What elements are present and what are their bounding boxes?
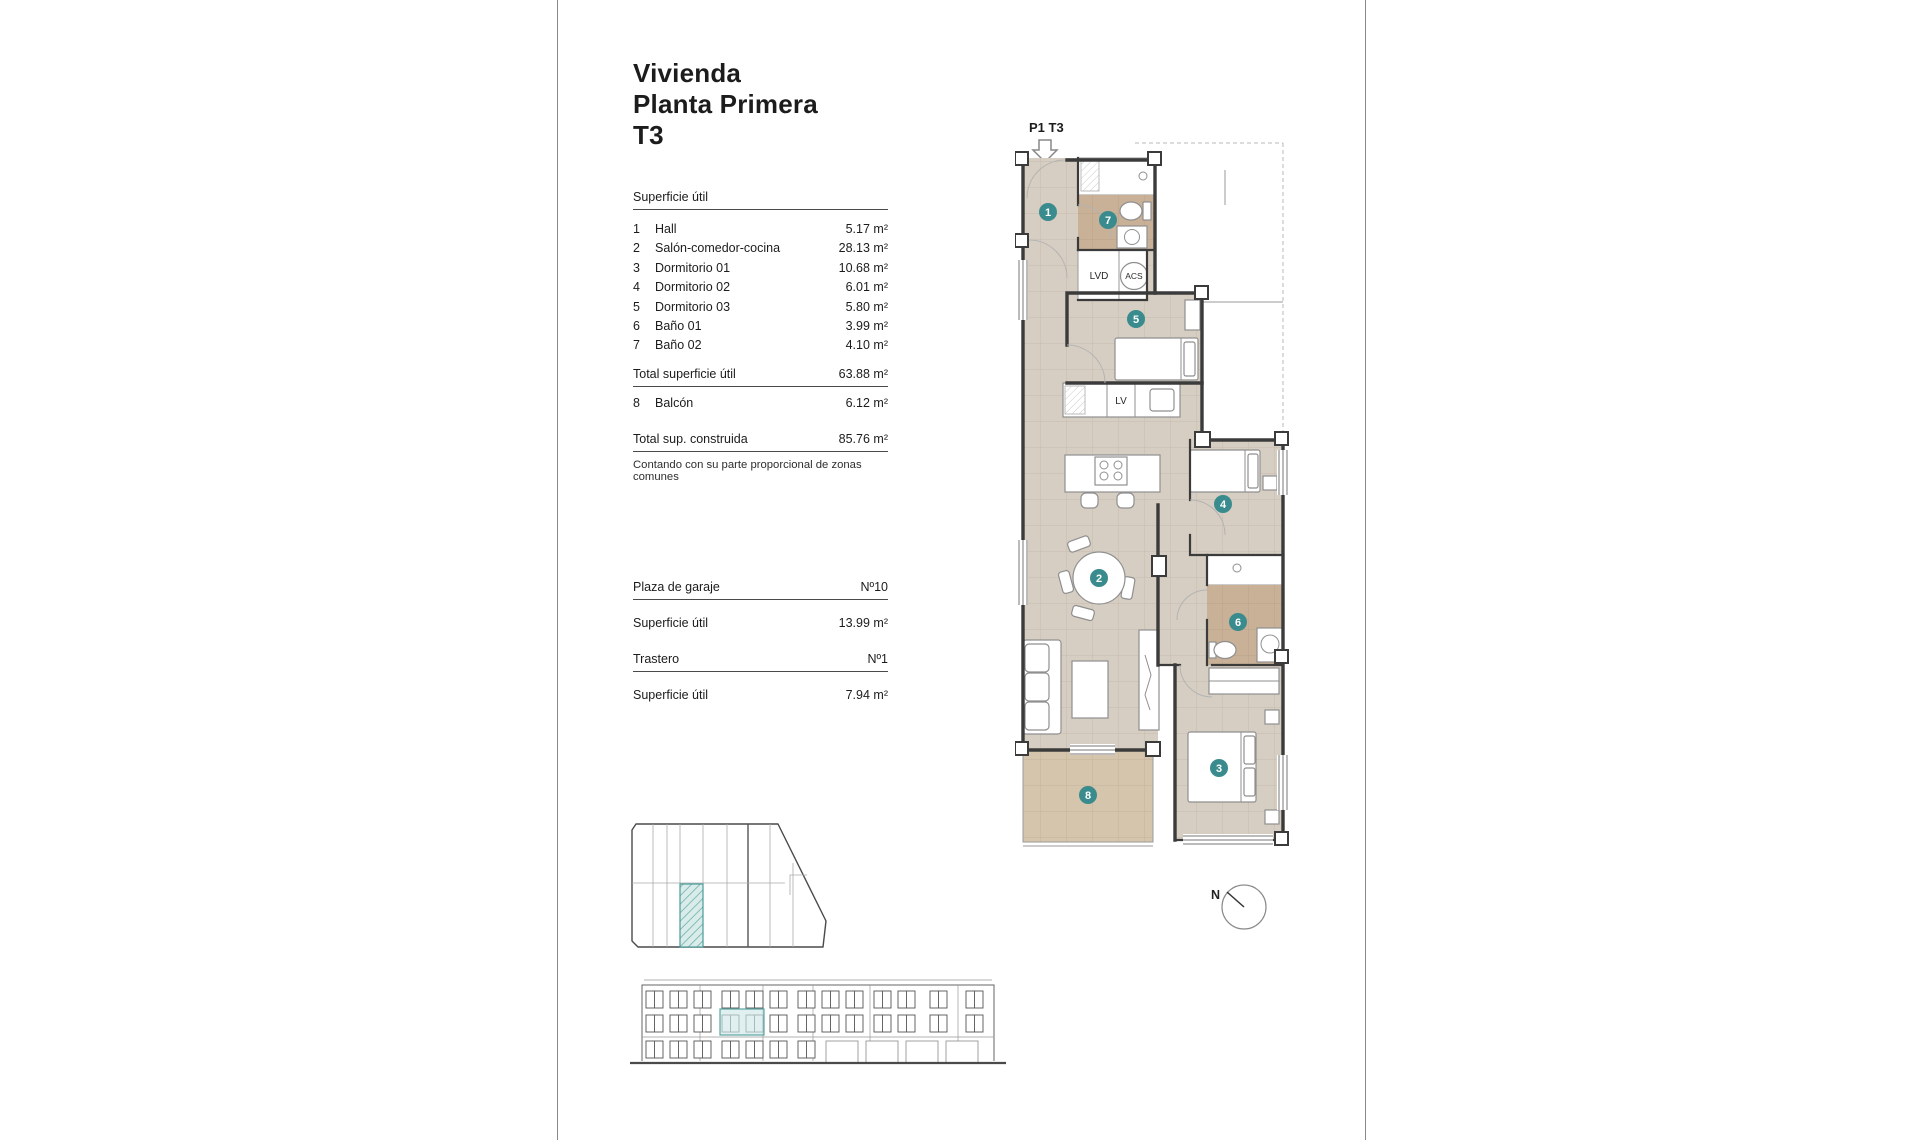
storage-number: Nº1 [867, 652, 888, 666]
sofa [1023, 640, 1061, 734]
badge-number: 5 [1133, 314, 1139, 326]
floor-plan: P1 T3 [1015, 110, 1305, 970]
highlighted-unit-plan [680, 884, 703, 947]
stool [1081, 493, 1098, 508]
total-built-row: Total sup. construida 85.76 m² [633, 432, 888, 452]
badge-number: 2 [1096, 573, 1102, 585]
pillow [1244, 768, 1255, 796]
row-name: Baño 02 [655, 338, 846, 352]
title-line-2: Planta Primera [633, 89, 818, 120]
unit-label: P1 T3 [1029, 120, 1064, 135]
row-num: 5 [633, 300, 655, 314]
row-value: 4.10 m² [846, 338, 888, 352]
title-line-3: T3 [633, 120, 818, 151]
storage-area-value: 7.94 m² [846, 688, 888, 702]
row-num: 1 [633, 222, 655, 236]
storage-area-row: Superficie útil 7.94 m² [633, 688, 888, 702]
garage-area-value: 13.99 m² [839, 616, 888, 630]
pillow [1184, 342, 1195, 376]
room-badge-2: 2 [1090, 569, 1108, 587]
row-num: 8 [633, 396, 655, 410]
room-badge-1: 1 [1039, 203, 1057, 221]
hob [1095, 457, 1127, 485]
table-row: 1 Hall 5.17 m² [633, 222, 888, 241]
row-value: 5.17 m² [846, 222, 888, 236]
table-row: 5 Dormitorio 03 5.80 m² [633, 300, 888, 319]
row-value: 28.13 m² [839, 241, 888, 255]
built-label: Total sup. construida [633, 432, 748, 446]
row-num: 7 [633, 338, 655, 352]
nightstand [1263, 476, 1277, 490]
row-value: 3.99 m² [846, 319, 888, 333]
row-num: 6 [633, 319, 655, 333]
storage-header-row: Trastero Nº1 [633, 652, 888, 672]
badge-number: 3 [1216, 763, 1222, 775]
table-row: 4 Dormitorio 02 6.01 m² [633, 280, 888, 299]
stool [1117, 493, 1134, 508]
building-outline [632, 824, 826, 947]
lvd-label: LVD [1090, 271, 1109, 282]
row-name: Hall [655, 222, 846, 236]
pillow [1248, 454, 1258, 488]
garage-header-row: Plaza de garaje Nº10 [633, 580, 888, 600]
highlighted-unit-elevation [720, 1009, 764, 1035]
building-elevation [630, 969, 1006, 1067]
badge-number: 8 [1085, 790, 1091, 802]
table-row: 7 Baño 02 4.10 m² [633, 338, 888, 357]
row-name: Dormitorio 03 [655, 300, 846, 314]
ground-floor-openings [646, 1041, 978, 1063]
row-name: Balcón [655, 396, 846, 410]
page-title: Vivienda Planta Primera T3 [633, 58, 818, 151]
nightstand [1265, 810, 1279, 824]
pillow [1244, 736, 1255, 764]
first-floor-windows [646, 1015, 983, 1032]
kitchen-sink [1150, 389, 1174, 411]
nightstand [1265, 710, 1279, 724]
total-value: 63.88 m² [839, 367, 888, 381]
row-num: 2 [633, 241, 655, 255]
compass: N [1211, 885, 1266, 929]
row-num: 4 [633, 280, 655, 294]
row-value: 10.68 m² [839, 261, 888, 275]
row-value: 5.80 m² [846, 300, 888, 314]
row-name: Salón-comedor-cocina [655, 241, 839, 255]
built-value: 85.76 m² [839, 432, 888, 446]
site-plan-key [630, 818, 830, 954]
built-note: Contando con su parte proporcional de zo… [633, 459, 888, 483]
title-line-1: Vivienda [633, 58, 818, 89]
room-badge-6: 6 [1229, 613, 1247, 631]
garage-number: Nº10 [861, 580, 889, 594]
room-badge-7: 7 [1099, 211, 1117, 229]
kitchen-appliance [1065, 386, 1085, 414]
room-badge-4: 4 [1214, 495, 1232, 513]
badge-number: 4 [1220, 499, 1227, 511]
row-value: 6.01 m² [846, 280, 888, 294]
acs-label: ACS [1125, 271, 1143, 281]
row-name: Dormitorio 01 [655, 261, 839, 275]
badge-number: 6 [1235, 617, 1241, 629]
wardrobe-bed3 [1185, 300, 1200, 330]
balcony-row: 8 Balcón 6.12 m² [633, 396, 888, 415]
storage-area-label: Superficie útil [633, 688, 708, 702]
compass-north-label: N [1211, 888, 1220, 902]
coffee-table [1072, 661, 1108, 718]
sheet-border-left [557, 0, 558, 1140]
badge-number: 7 [1105, 215, 1111, 227]
garage-storage-table: Plaza de garaje Nº10 Superficie útil 13.… [633, 580, 888, 702]
room-badge-5: 5 [1127, 310, 1145, 328]
storage-label: Trastero [633, 652, 679, 666]
row-value: 6.12 m² [846, 396, 888, 410]
toilet [1120, 202, 1142, 220]
sheet-border-right [1365, 0, 1366, 1140]
garage-area-label: Superficie útil [633, 616, 708, 630]
row-name: Baño 01 [655, 319, 846, 333]
lv-label: LV [1115, 396, 1127, 407]
upper-floor-windows [646, 991, 983, 1008]
garage-area-row: Superficie útil 13.99 m² [633, 616, 888, 630]
table-row: 3 Dormitorio 01 10.68 m² [633, 261, 888, 280]
room-badge-3: 3 [1210, 759, 1228, 777]
toilet-cistern [1143, 202, 1151, 220]
plan-sheet: Vivienda Planta Primera T3 Superficie út… [0, 0, 1920, 1140]
shower-tray [1081, 161, 1099, 191]
compass-needle [1227, 892, 1244, 907]
surface-table-header: Superficie útil [633, 190, 888, 210]
total-label: Total superficie útil [633, 367, 736, 381]
row-num: 3 [633, 261, 655, 275]
toilet [1214, 642, 1236, 659]
garage-label: Plaza de garaje [633, 580, 720, 594]
badge-number: 1 [1045, 207, 1051, 219]
surface-table: Superficie útil 1 Hall 5.17 m² 2 Salón-c… [633, 190, 888, 483]
total-useful-row: Total superficie útil 63.88 m² [633, 367, 888, 387]
row-name: Dormitorio 02 [655, 280, 846, 294]
table-row: 2 Salón-comedor-cocina 28.13 m² [633, 241, 888, 260]
bathroom1-entry [1207, 555, 1283, 585]
room-badge-8: 8 [1079, 786, 1097, 804]
table-row: 6 Baño 01 3.99 m² [633, 319, 888, 338]
